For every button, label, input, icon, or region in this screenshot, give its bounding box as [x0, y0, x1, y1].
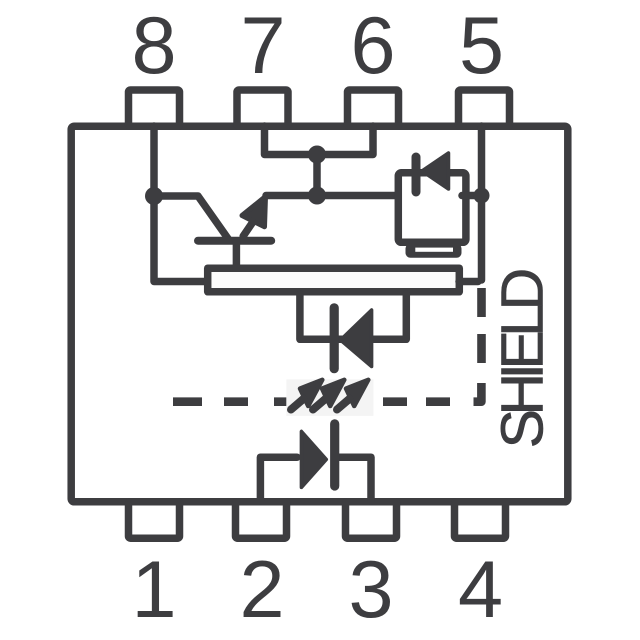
svg-text:8: 8 — [131, 1, 176, 91]
svg-text:SHIELD: SHIELD — [489, 270, 555, 448]
svg-text:2: 2 — [239, 545, 284, 635]
svg-text:5: 5 — [459, 1, 504, 91]
svg-text:1: 1 — [131, 545, 176, 635]
svg-text:6: 6 — [350, 1, 395, 91]
svg-text:3: 3 — [348, 545, 393, 635]
svg-text:4: 4 — [458, 545, 503, 635]
svg-text:7: 7 — [240, 1, 285, 91]
